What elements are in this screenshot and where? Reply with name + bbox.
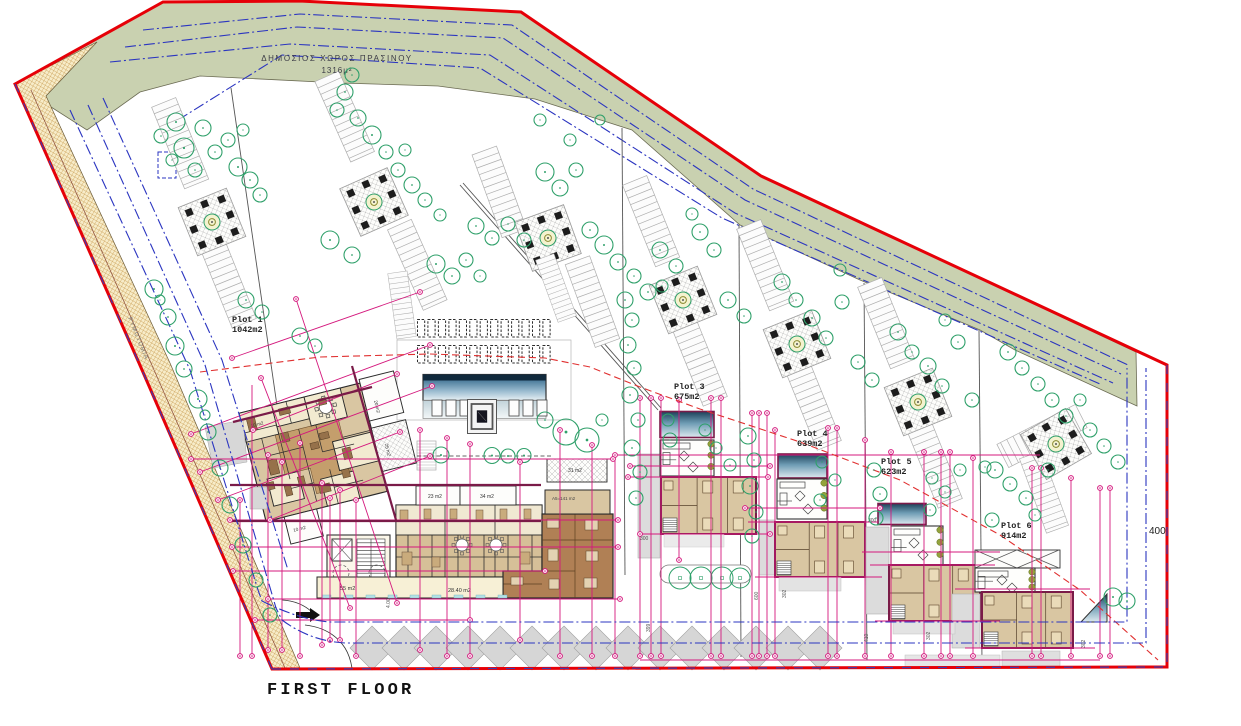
svg-text:302: 302 <box>782 589 788 598</box>
svg-text:302: 302 <box>1081 639 1087 648</box>
svg-text:Plot 6: Plot 6 <box>1001 521 1032 531</box>
svg-text:302: 302 <box>926 631 932 640</box>
svg-text:400: 400 <box>1149 526 1166 537</box>
svg-text:399: 399 <box>646 623 652 632</box>
svg-text:623m2: 623m2 <box>881 467 907 477</box>
svg-text:675m2: 675m2 <box>674 392 700 402</box>
svg-text:34 m2: 34 m2 <box>480 494 494 500</box>
svg-text:914m2: 914m2 <box>1001 531 1027 541</box>
svg-text:300: 300 <box>640 536 649 542</box>
svg-text:Plot 3: Plot 3 <box>674 382 705 392</box>
svg-text:FIRST FLOOR: FIRST FLOOR <box>267 681 414 700</box>
svg-text:1042m2: 1042m2 <box>232 325 263 335</box>
svg-text:28.40 m2: 28.40 m2 <box>448 588 471 594</box>
svg-text:4.00: 4.00 <box>386 598 392 608</box>
svg-text:Plot 4: Plot 4 <box>797 429 828 439</box>
svg-text:A5=141 m2: A5=141 m2 <box>552 496 576 501</box>
svg-text:23 m2: 23 m2 <box>428 494 442 500</box>
svg-text:Plot 5: Plot 5 <box>881 457 912 467</box>
svg-text:1316μ²: 1316μ² <box>321 66 352 75</box>
svg-text:639m2: 639m2 <box>797 439 823 449</box>
svg-text:410: 410 <box>864 633 870 642</box>
svg-text:Plot 1: Plot 1 <box>232 315 263 325</box>
svg-text:31 m2: 31 m2 <box>568 468 582 474</box>
svg-text:ΔΗΜΟΣΙΟΣ ΧΩΡΟΣ ΠΡΑΣΙΝΟΥ: ΔΗΜΟΣΙΟΣ ΧΩΡΟΣ ΠΡΑΣΙΝΟΥ <box>261 54 413 63</box>
svg-text:600: 600 <box>754 591 760 600</box>
